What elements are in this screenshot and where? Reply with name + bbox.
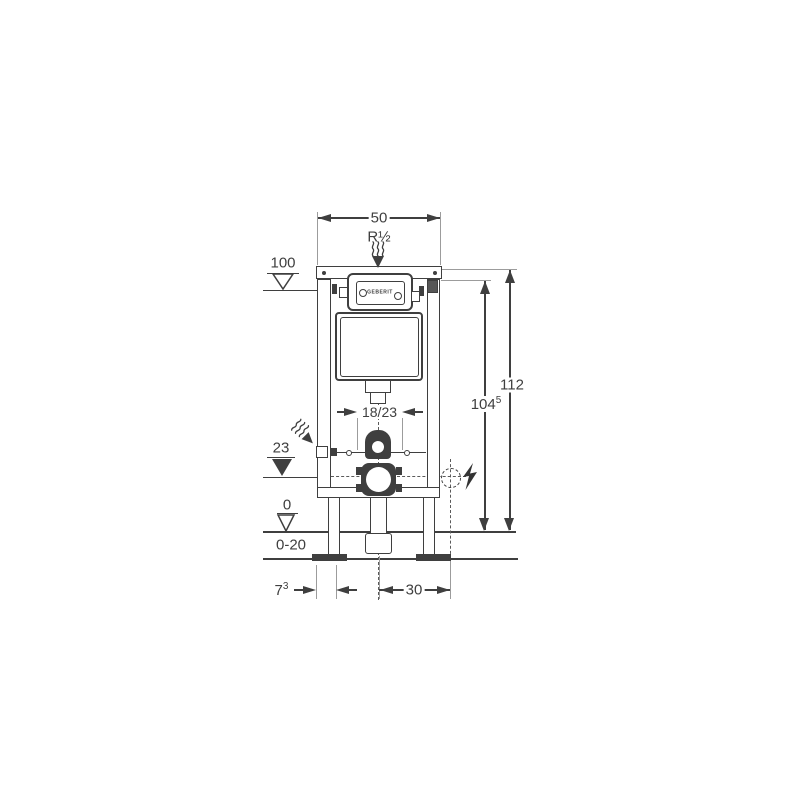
offset-extension-right	[450, 559, 451, 599]
level-23-triangle-icon	[271, 458, 293, 477]
plate-height-base: 104	[471, 396, 496, 413]
arrowhead-1823-right	[402, 408, 415, 416]
rail-tick-left	[332, 284, 338, 294]
arrowhead-foot-left	[303, 586, 316, 594]
arrowhead-112-top	[505, 270, 515, 283]
rod-spacing-label: 18/23	[360, 405, 399, 419]
outlet-socket	[365, 533, 393, 555]
top-rail-screw-left	[322, 271, 326, 275]
plate-height-label: 1045	[469, 396, 504, 412]
dim-tail-1823-right	[415, 411, 423, 412]
dim-line-112	[509, 270, 510, 530]
arrowhead-30-left	[380, 586, 393, 594]
frame-foot-right	[416, 554, 451, 561]
arrowhead-foot-right	[336, 586, 349, 594]
ext-line-foot-left	[316, 565, 317, 599]
arrowhead-104-bottom	[479, 518, 489, 531]
housing-clip-left	[359, 289, 367, 297]
arrowhead-1823-left	[344, 408, 357, 416]
outlet-pipe	[370, 497, 388, 534]
frame-leg-left	[328, 497, 341, 556]
arrowhead-50-left	[318, 214, 331, 222]
water-supply-connection-box	[316, 446, 328, 458]
outlet-offset-label: 30	[404, 582, 425, 597]
frame-foot-left	[312, 554, 347, 561]
cistern-inner-line	[340, 317, 419, 377]
flush-bend-opening	[371, 440, 385, 454]
foot-depth-sup: 3	[283, 581, 289, 592]
housing-stub-left	[339, 287, 348, 298]
outlet-flange-opening	[366, 467, 391, 492]
frame-leg-right	[423, 497, 436, 556]
upper-level-label: 100	[268, 255, 297, 270]
inlet-arrow-icon	[372, 256, 384, 268]
total-height-label: 112	[498, 378, 526, 393]
zero-level-label: 0	[281, 498, 293, 513]
ext-line-foot-right	[336, 565, 337, 599]
rail-bracket-right	[427, 280, 438, 293]
fixing-hole-right	[404, 450, 410, 456]
flush-pipe-upper	[370, 392, 386, 404]
technical-diagram: GEBERIT 50 R½ 112 1045 18/23	[0, 0, 800, 800]
outlet-flange-ear-br	[396, 484, 402, 492]
electrical-connection-circle	[441, 468, 461, 488]
arrowhead-30-right	[437, 586, 450, 594]
plate-height-sup: 5	[496, 395, 502, 406]
top-rail-screw-right	[433, 271, 437, 275]
fixing-hole-left	[346, 450, 352, 456]
water-inlet-icon	[369, 241, 387, 257]
housing-clip-right	[394, 292, 402, 300]
dim-tail-foot-right	[349, 589, 357, 590]
level-0-triangle-icon	[277, 514, 295, 532]
lightning-icon	[461, 463, 479, 491]
level-100-triangle-icon	[272, 273, 294, 290]
arrowhead-112-bottom	[504, 518, 514, 531]
dimension-50-label: 50	[369, 211, 390, 226]
floor-range-label: 0-20	[274, 538, 308, 553]
arrowhead-50-right	[427, 214, 440, 222]
ext-line-1823-right	[402, 418, 403, 450]
ext-line-1823-left	[357, 418, 358, 450]
outlet-height-label: 23	[271, 441, 292, 456]
water-supply-nub	[330, 448, 337, 457]
base-floor-line	[263, 558, 518, 560]
frame-left-rail	[317, 279, 331, 489]
arrowhead-104-top	[480, 281, 490, 294]
outlet-flange-ear-tr	[396, 467, 402, 475]
foot-depth-label: 73	[273, 582, 291, 598]
rail-tick-right	[419, 286, 425, 296]
geberit-brand-label: GEBERIT	[367, 290, 393, 295]
frame-right-rail	[427, 279, 441, 489]
